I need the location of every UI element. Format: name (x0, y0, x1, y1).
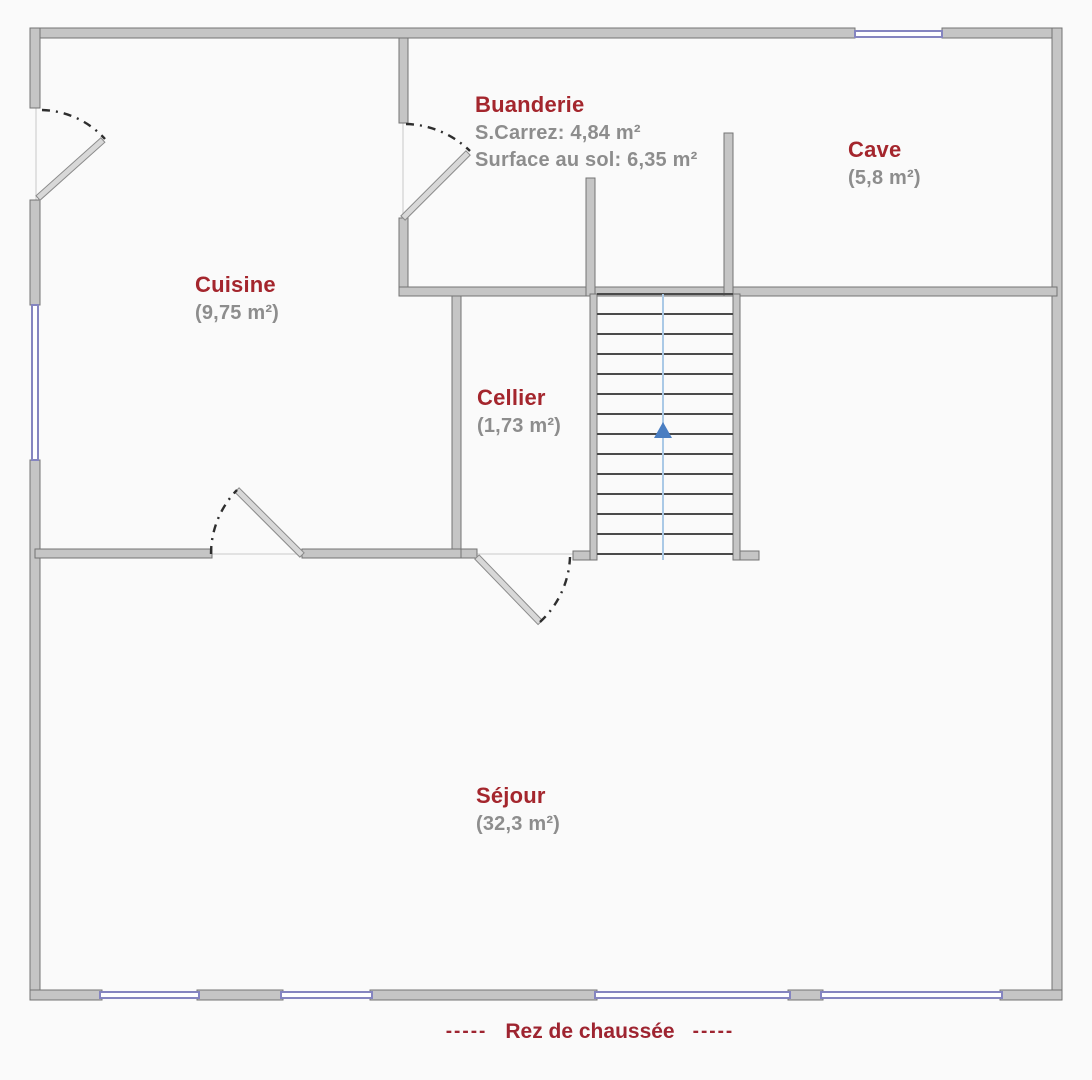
room-name: Séjour (476, 781, 560, 811)
room-label-cuisine: Cuisine (9,75 m²) (195, 270, 279, 327)
door-cuisine-sejour (211, 488, 304, 557)
floor-title: Rez de chaussée (505, 1020, 674, 1044)
room-area: (32,3 m²) (476, 811, 560, 838)
room-name: Cuisine (195, 270, 279, 300)
stair-up-arrow-icon (654, 422, 672, 438)
staircase (590, 294, 740, 560)
door-cellier (475, 555, 570, 625)
room-area: (9,75 m²) (195, 300, 279, 327)
stair-treads (597, 294, 733, 554)
floor-caption: ----- Rez de chaussée ----- (330, 1020, 850, 1044)
window-bottom-1 (100, 992, 199, 998)
room-name: Cellier (477, 383, 561, 413)
room-name: Buanderie (475, 90, 697, 120)
room-name: Cave (848, 135, 921, 165)
door-openings (36, 108, 573, 554)
window-left (32, 305, 38, 460)
room-area: (5,8 m²) (848, 165, 921, 192)
door-cuisine-entry (36, 110, 105, 200)
stair-rail-left (590, 294, 597, 560)
caption-dashes-right: ----- (693, 1021, 735, 1043)
floor-plan: Buanderie S.Carrez: 4,84 m² Surface au s… (0, 0, 1092, 1080)
window-bottom-2 (281, 992, 372, 998)
door-buanderie (401, 124, 470, 220)
room-label-sejour: Séjour (32,3 m²) (476, 781, 560, 838)
room-label-buanderie: Buanderie S.Carrez: 4,84 m² Surface au s… (475, 90, 697, 174)
room-floor-area: Surface au sol: 6,35 m² (475, 147, 697, 174)
window-bottom-3 (595, 992, 790, 998)
window-top (855, 31, 942, 37)
room-area: (1,73 m²) (477, 413, 561, 440)
stair-rail-right (733, 294, 740, 560)
room-label-cellier: Cellier (1,73 m²) (477, 383, 561, 440)
window-bottom-4 (821, 992, 1002, 998)
room-label-cave: Cave (5,8 m²) (848, 135, 921, 192)
caption-dashes-left: ----- (446, 1021, 488, 1043)
room-carrez-area: S.Carrez: 4,84 m² (475, 120, 697, 147)
